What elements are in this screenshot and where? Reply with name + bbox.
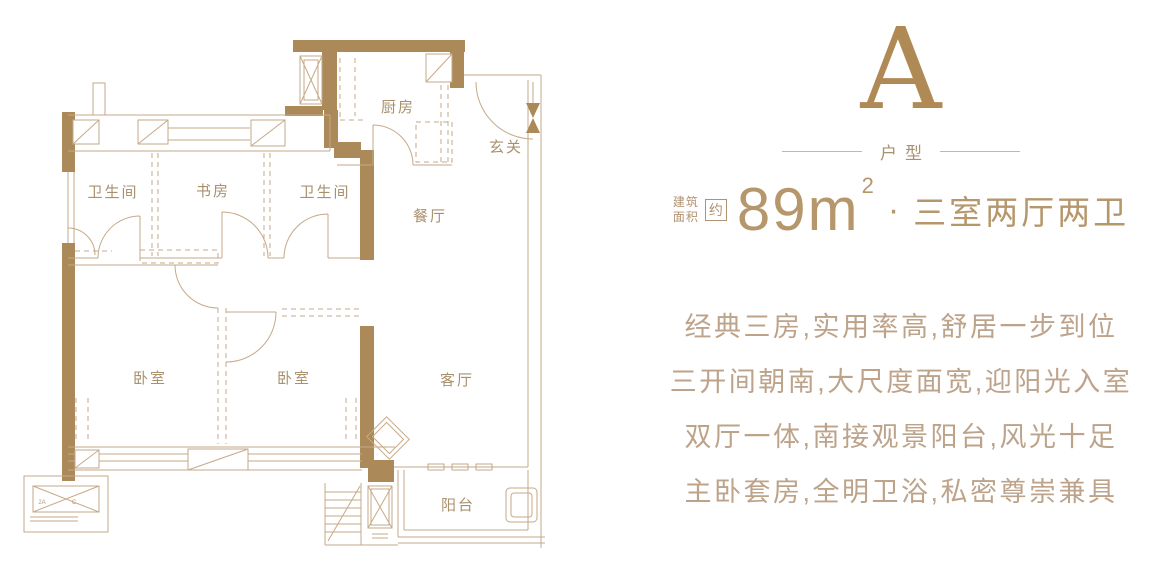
info-panel: A 户型 建筑 面积 约 89m 2 · 三室两厅两卫 经典三房,实用率高,舒居…: [640, 0, 1162, 588]
window-icon: [251, 120, 285, 146]
area-number: 89m: [737, 180, 860, 240]
door-arc: [284, 214, 328, 258]
room-label-bathroom-left: 卫生间: [87, 184, 138, 201]
description-line: 三开间朝南,大尺度面宽,迎阳光入室: [640, 355, 1162, 410]
unit-type-row: 户型: [640, 139, 1162, 164]
window-icon: [138, 120, 168, 144]
door-arc: [98, 216, 140, 258]
description-line: 经典三房,实用率高,舒居一步到位: [640, 300, 1162, 355]
window-icon: [426, 54, 452, 82]
entry-door-icon: [476, 82, 540, 139]
shaft-icon: [368, 486, 392, 538]
layout-text: 三室两厅两卫: [913, 186, 1129, 234]
window-icon: [75, 450, 99, 468]
thin-walls: [68, 75, 545, 548]
area-prefix-line2: 面积: [673, 210, 699, 224]
room-label-balcony: 阳台: [441, 497, 475, 514]
door-arc: [175, 265, 218, 308]
window-icon: [73, 120, 99, 144]
description-line: 主卧套房,全明卫浴,私密尊崇兼具: [640, 465, 1162, 520]
washing-machine-icon: [506, 488, 537, 522]
room-label-dining: 餐厅: [413, 208, 447, 225]
room-label-study: 书房: [196, 183, 230, 200]
room-label-foyer: 玄关: [489, 139, 523, 156]
area-prefix-line1: 建筑: [673, 195, 699, 209]
windows: [73, 54, 492, 470]
bay-window-mark: 2A: [38, 500, 45, 506]
room-label-bedroom-right: 卧室: [277, 370, 311, 387]
unit-type-label: 户型: [880, 139, 930, 164]
door-arc: [222, 212, 268, 258]
room-label-bathroom-right: 卫生间: [299, 184, 350, 201]
area-row: 建筑 面积 约 89m 2 · 三室两厅两卫: [640, 178, 1162, 242]
room-label-living: 客厅: [440, 372, 474, 389]
door-arc: [373, 125, 413, 165]
bay-window-mark: C: [72, 500, 77, 506]
floor-plan: 2A C 卫生间 书房 卫生间 厨房 玄关 餐厅 卧室 卧室 客厅 阳台: [0, 0, 620, 588]
left-rule: [782, 151, 862, 152]
elevator-icon: [300, 56, 322, 104]
bay-window-icon: 2A C: [24, 476, 108, 532]
window-icon: [188, 449, 248, 470]
right-rule: [940, 151, 1020, 152]
separator-dot: ·: [888, 191, 899, 230]
room-labels: 卫生间 书房 卫生间 厨房 玄关 餐厅 卧室 卧室 客厅 阳台: [87, 99, 523, 514]
door-arc: [226, 312, 276, 362]
room-label-kitchen: 厨房: [381, 99, 415, 116]
room-label-bedroom-left: 卧室: [133, 370, 167, 387]
description: 经典三房,实用率高,舒居一步到位 三开间朝南,大尺度面宽,迎阳光入室 双厅一体,…: [640, 300, 1162, 520]
unit-type-letter: A: [640, 14, 1162, 126]
approx-badge: 约: [705, 199, 727, 221]
area-superscript: 2: [862, 173, 874, 199]
description-line: 双厅一体,南接观景阳台,风光十足: [640, 410, 1162, 465]
area-prefix: 建筑 面积: [673, 195, 699, 225]
